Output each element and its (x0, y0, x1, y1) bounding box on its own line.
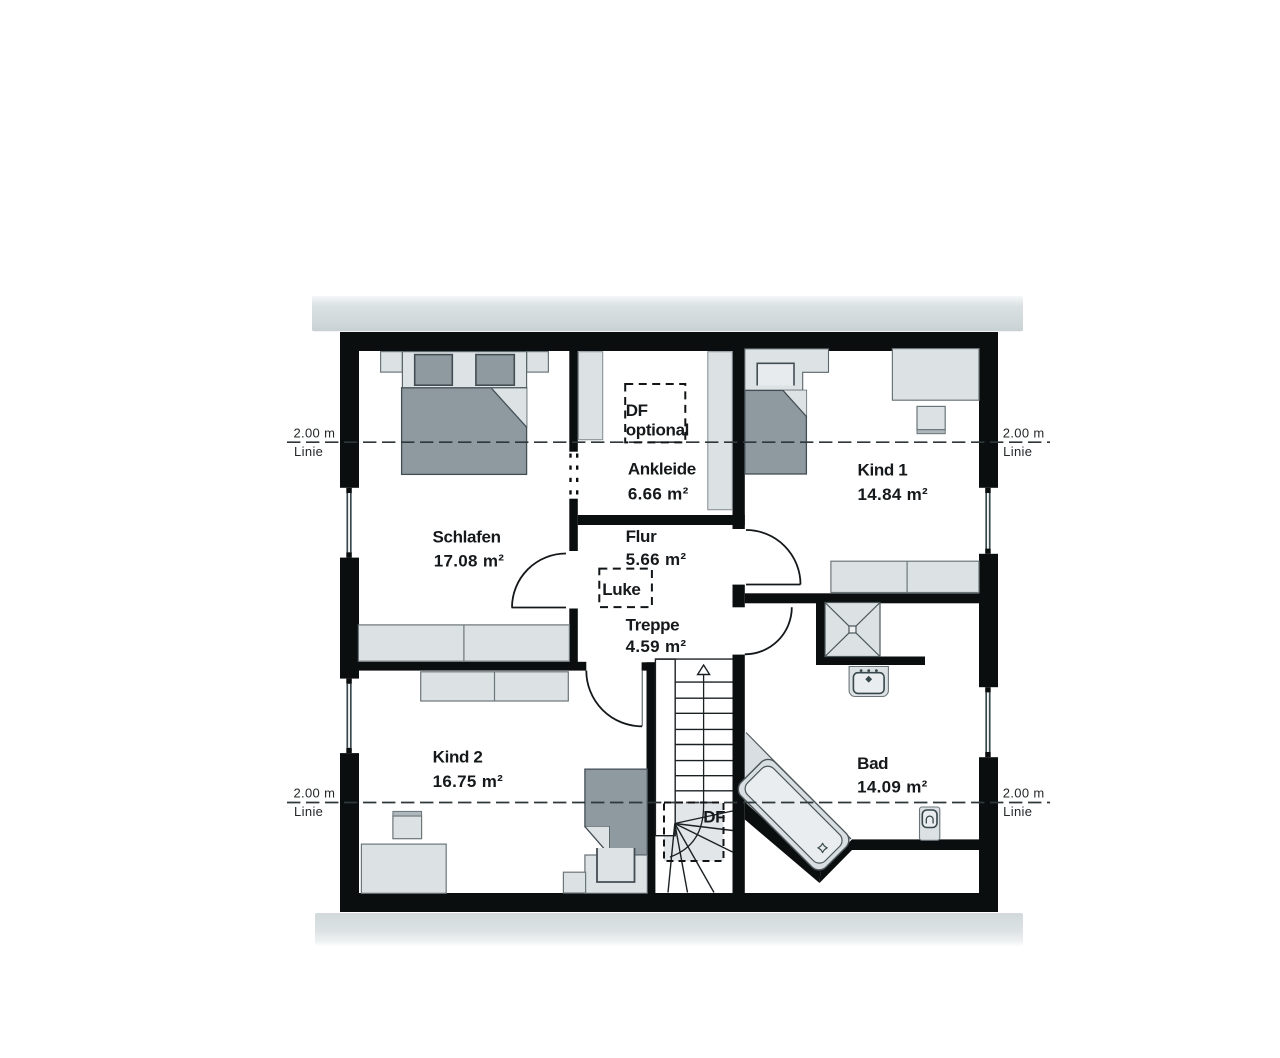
svg-text:2.00 m: 2.00 m (1003, 425, 1045, 440)
svg-text:4.59 m²: 4.59 m² (626, 637, 687, 656)
svg-text:Schlafen: Schlafen (433, 527, 501, 546)
svg-text:2.00 m: 2.00 m (1003, 785, 1045, 800)
svg-text:Kind 2: Kind 2 (433, 747, 483, 766)
svg-text:optional: optional (626, 421, 689, 440)
svg-text:2.00 m: 2.00 m (293, 785, 335, 800)
svg-text:Flur: Flur (626, 527, 657, 546)
svg-text:DF: DF (626, 401, 648, 420)
svg-text:2.00 m: 2.00 m (293, 425, 335, 440)
svg-text:16.75 m²: 16.75 m² (433, 772, 503, 791)
svg-text:Bad: Bad (857, 754, 888, 773)
svg-text:17.08 m²: 17.08 m² (434, 552, 504, 571)
svg-text:Linie: Linie (294, 444, 323, 459)
svg-text:Linie: Linie (294, 804, 323, 819)
svg-text:DF: DF (703, 807, 725, 826)
svg-text:Treppe: Treppe (626, 615, 680, 634)
svg-text:6.66 m²: 6.66 m² (628, 485, 689, 504)
svg-text:Ankleide: Ankleide (628, 460, 696, 479)
svg-text:Kind 1: Kind 1 (858, 461, 908, 480)
svg-text:Linie: Linie (1003, 804, 1032, 819)
svg-text:Linie: Linie (1003, 444, 1032, 459)
svg-text:14.84 m²: 14.84 m² (858, 485, 928, 504)
svg-text:5.66 m²: 5.66 m² (626, 550, 687, 569)
svg-text:14.09 m²: 14.09 m² (857, 778, 927, 797)
svg-text:Luke: Luke (602, 580, 640, 599)
